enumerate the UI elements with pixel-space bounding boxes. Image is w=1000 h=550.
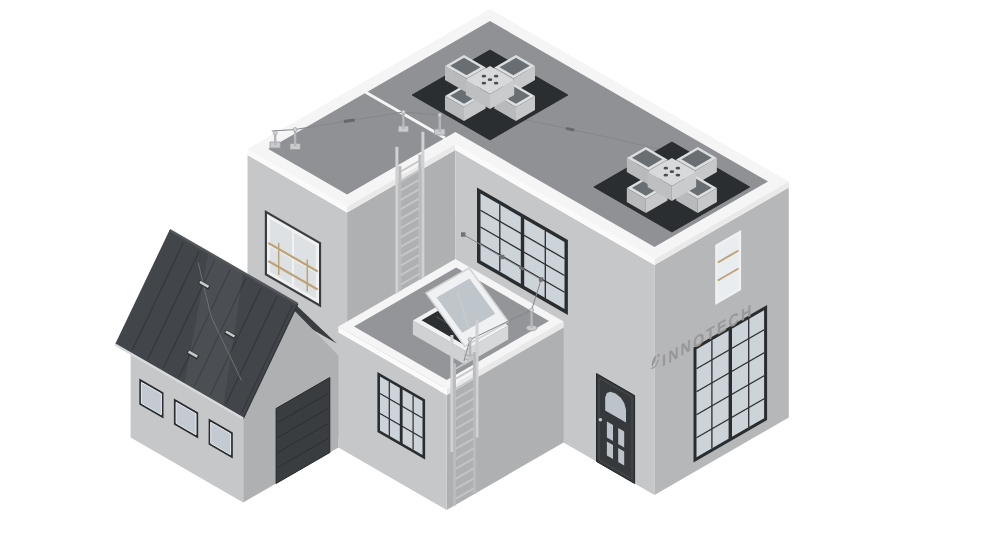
building-svg: INNOTECH <box>0 0 1000 550</box>
isometric-building-render: INNOTECH <box>0 0 1000 550</box>
